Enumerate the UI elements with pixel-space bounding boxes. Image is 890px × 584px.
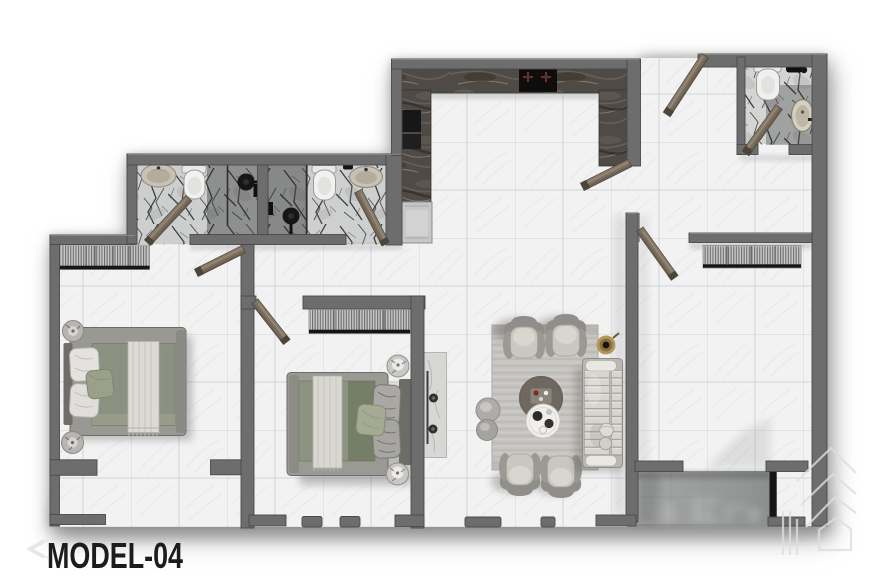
svg-text:MODEL-04: MODEL-04 (47, 535, 183, 576)
